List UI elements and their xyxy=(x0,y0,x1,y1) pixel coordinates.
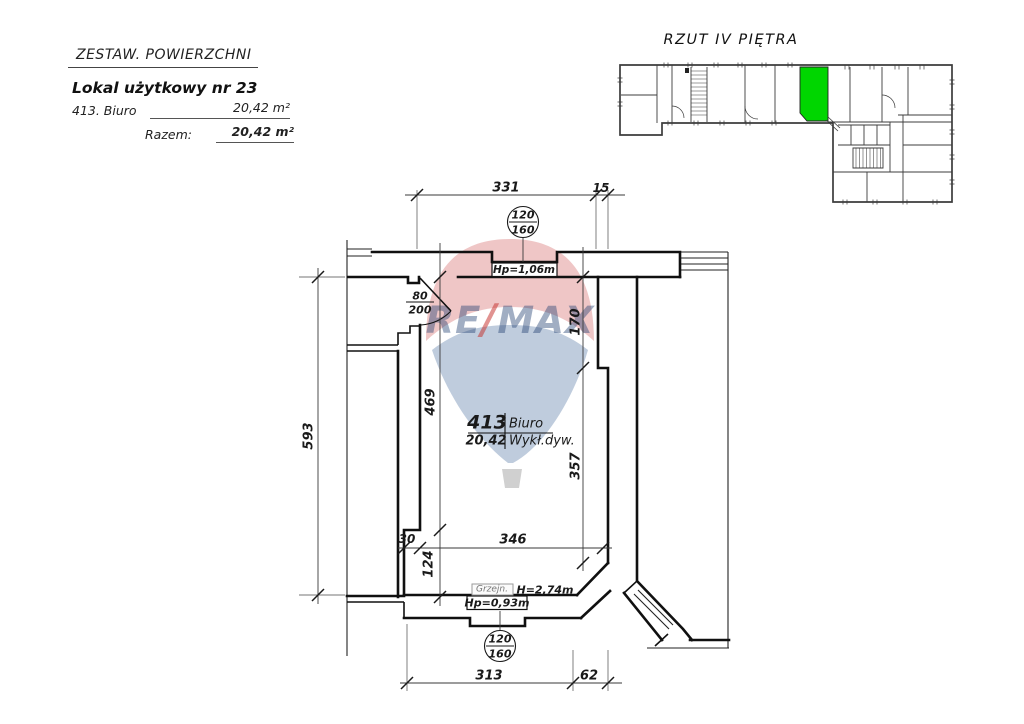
miniplan-chimney-mark xyxy=(685,68,689,73)
wall-top-inner-left xyxy=(348,277,419,283)
room-name: Biuro xyxy=(509,418,543,431)
dim-right-357: 357 xyxy=(570,452,583,479)
dim-left-124: 124 xyxy=(423,550,436,577)
dim-bottom-313: 313 xyxy=(475,670,502,683)
window-badge-bottom-width: 120 xyxy=(489,634,512,645)
balloon-basket xyxy=(502,469,522,488)
floorplan-page: RE/MAX xyxy=(0,0,1024,724)
miniplan-outline xyxy=(620,65,952,202)
summary-title: ZESTAW. POWIERZCHNI xyxy=(68,48,258,68)
door-height-label: 200 xyxy=(409,305,432,316)
wall-room-left xyxy=(404,325,420,595)
diagonal-door-leaf xyxy=(634,590,673,629)
room-height-label: H=2,74m xyxy=(516,585,573,596)
radiator-label: Grzejn. xyxy=(476,586,508,595)
area-row-value: 20,42 m² xyxy=(150,102,290,119)
sill-bottom-label: Hp=0,93m xyxy=(465,598,530,609)
wall-diagonal-outer xyxy=(581,591,610,618)
total-label: Razem: xyxy=(145,129,192,142)
window-badge-top-height: 160 xyxy=(512,225,535,236)
miniplan-highlight-room xyxy=(800,67,828,121)
window-badge-bottom-height: 160 xyxy=(489,649,512,660)
dim-top-331: 331 xyxy=(492,182,519,195)
miniplan-stair1-treads xyxy=(691,71,707,115)
dim-left-593: 593 xyxy=(303,422,316,449)
area-row-label: 413. Biuro xyxy=(72,105,137,118)
wall-left-room xyxy=(347,351,404,597)
unit-title: Lokal użytkowy nr 23 xyxy=(72,81,257,97)
sill-top-label: Hp=1,06m xyxy=(493,265,555,276)
dim-step-30: 30 xyxy=(399,533,416,545)
door-width-label: 80 xyxy=(412,291,427,302)
wall-diagonal-inner xyxy=(577,563,608,595)
dim-top-15: 15 xyxy=(593,182,610,194)
miniplan-stair2-treads xyxy=(856,148,881,168)
room-number: 413 xyxy=(467,414,507,433)
room-area: 20,42 xyxy=(465,435,506,448)
dim-bottom-62: 62 xyxy=(580,670,598,683)
dim-bottom-346: 346 xyxy=(499,534,526,547)
wall-bottom-outer xyxy=(404,618,581,626)
miniplan-window-ticks xyxy=(618,63,955,205)
dim-left-469: 469 xyxy=(425,388,438,415)
wall-room-right xyxy=(598,277,608,563)
room-finish: Wykł.dyw. xyxy=(509,435,575,448)
window-badge-top-width: 120 xyxy=(512,210,535,221)
wall-neighbor-right xyxy=(637,277,692,640)
miniplan-partitions xyxy=(621,65,952,202)
total-value: 20,42 m² xyxy=(216,126,294,143)
overview-title: RZUT IV PIĘTRA xyxy=(664,33,799,48)
dim-right-170: 170 xyxy=(570,308,583,335)
overview-miniplan xyxy=(618,63,955,205)
